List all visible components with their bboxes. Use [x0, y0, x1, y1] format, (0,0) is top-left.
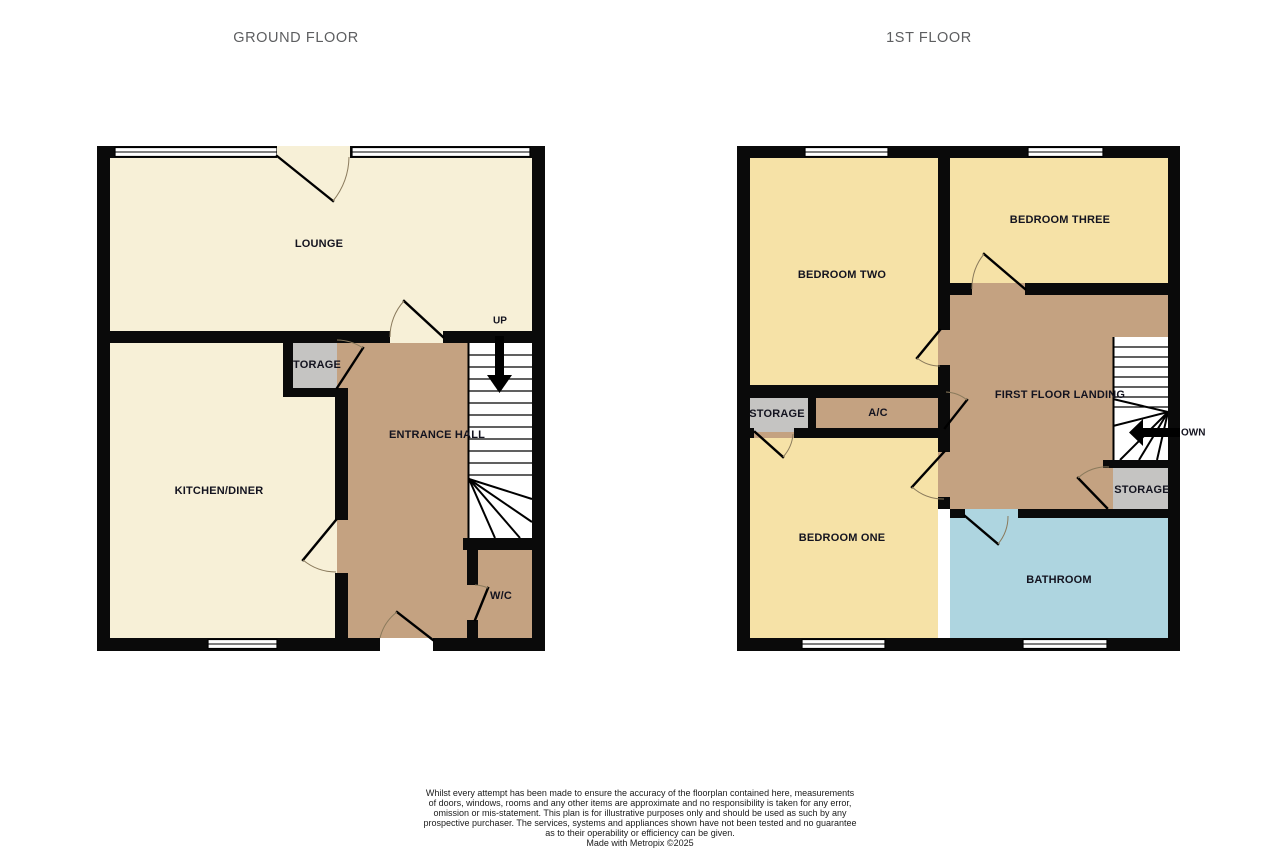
- storage-label: TORAGE: [293, 359, 341, 371]
- front-door-opening: [380, 638, 433, 651]
- ground-floor-title: GROUND FLOOR: [233, 30, 359, 46]
- lounge-label: LOUNGE: [295, 238, 343, 250]
- ground-floor-plan: LOUNGE KITCHEN/DINER ENTRANCE HALL TORAG…: [97, 146, 545, 651]
- stairs-down-label: OWN: [1181, 428, 1205, 439]
- first-floor-title: 1ST FLOOR: [886, 30, 972, 46]
- ac-label: A/C: [868, 407, 888, 419]
- stairs-up-label: UP: [493, 316, 507, 327]
- entrance-hall-label: ENTRANCE HALL: [389, 429, 485, 441]
- bedroom-one-label: BEDROOM ONE: [799, 532, 886, 544]
- disclaimer: Whilst every attempt has been made to en…: [320, 789, 960, 848]
- bathroom-label: BATHROOM: [1026, 574, 1092, 586]
- landing-label: FIRST FLOOR LANDING: [995, 389, 1125, 401]
- kitchen-diner-label: KITCHEN/DINER: [175, 485, 264, 497]
- disclaimer-credit: Made with Metropix ©2025: [320, 839, 960, 849]
- bedroom-two-label: BEDROOM TWO: [798, 269, 886, 281]
- wc-label: W/C: [490, 590, 512, 602]
- patio-door-opening: [277, 146, 350, 158]
- ground-floor-drawing: [97, 146, 545, 651]
- bedroom-three-label: BEDROOM THREE: [1010, 214, 1110, 226]
- storage-left-label: STORAGE: [749, 408, 805, 420]
- storage-right-label: STORAGE: [1114, 484, 1170, 496]
- first-floor-plan: BEDROOM TWO BEDROOM THREE FIRST FLOOR LA…: [737, 146, 1180, 651]
